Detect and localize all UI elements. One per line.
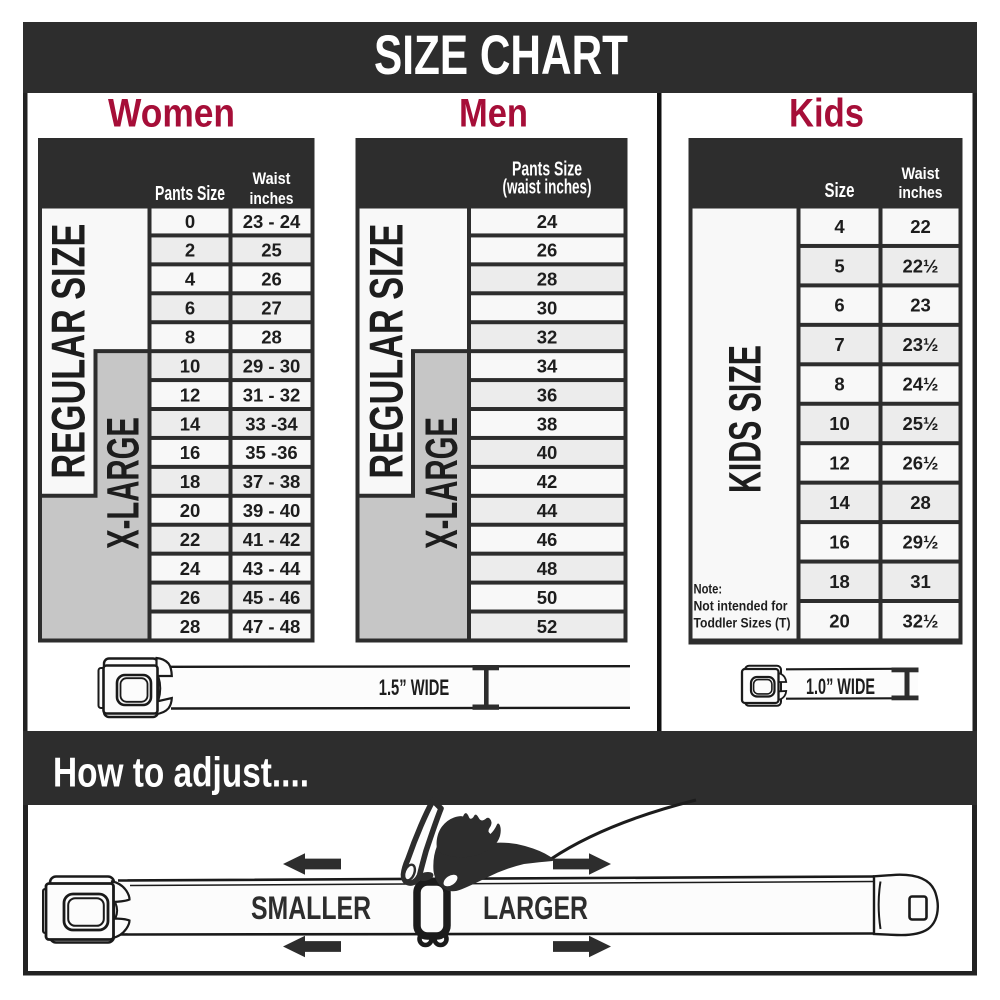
- svg-text:36: 36: [537, 384, 558, 405]
- svg-text:22: 22: [910, 216, 931, 237]
- svg-text:Kids: Kids: [789, 92, 864, 136]
- svg-text:44: 44: [537, 500, 558, 521]
- svg-text:4: 4: [834, 216, 845, 237]
- svg-text:1.0” WIDE: 1.0” WIDE: [806, 674, 875, 699]
- svg-text:4: 4: [185, 269, 196, 290]
- svg-text:18: 18: [180, 471, 201, 492]
- svg-text:34: 34: [537, 355, 558, 376]
- svg-text:Men: Men: [459, 92, 528, 136]
- svg-text:26: 26: [180, 587, 201, 608]
- svg-text:45 - 46: 45 - 46: [243, 587, 301, 608]
- svg-text:24: 24: [537, 211, 558, 232]
- svg-text:8: 8: [834, 374, 844, 395]
- svg-text:35 -36: 35 -36: [245, 442, 297, 463]
- svg-text:SIZE CHART: SIZE CHART: [374, 23, 628, 86]
- svg-text:26: 26: [261, 269, 282, 290]
- svg-text:23: 23: [910, 295, 931, 316]
- svg-text:23½: 23½: [902, 334, 938, 355]
- svg-text:12: 12: [829, 453, 850, 474]
- svg-text:24½: 24½: [902, 374, 938, 395]
- svg-text:6: 6: [834, 295, 844, 316]
- svg-text:43 - 44: 43 - 44: [243, 558, 301, 579]
- svg-text:(waist inches): (waist inches): [503, 177, 592, 199]
- svg-text:28: 28: [180, 616, 201, 637]
- svg-text:31 - 32: 31 - 32: [243, 384, 301, 405]
- svg-text:28: 28: [910, 492, 931, 513]
- svg-text:26½: 26½: [902, 453, 938, 474]
- svg-text:22: 22: [180, 529, 201, 550]
- svg-text:Toddler Sizes (T): Toddler Sizes (T): [694, 614, 791, 630]
- svg-text:41 - 42: 41 - 42: [243, 529, 301, 550]
- svg-text:32½: 32½: [902, 610, 938, 631]
- svg-text:Waist: Waist: [253, 169, 291, 188]
- svg-text:32: 32: [537, 327, 558, 348]
- svg-text:12: 12: [180, 384, 201, 405]
- svg-text:16: 16: [180, 442, 201, 463]
- svg-text:Not intended for: Not intended for: [694, 597, 788, 613]
- svg-text:39 - 40: 39 - 40: [243, 500, 301, 521]
- svg-text:Pants Size: Pants Size: [155, 183, 225, 205]
- svg-text:KIDS SIZE: KIDS SIZE: [720, 345, 771, 493]
- svg-text:24: 24: [180, 558, 201, 579]
- svg-text:52: 52: [537, 616, 558, 637]
- svg-text:10: 10: [829, 413, 850, 434]
- svg-text:18: 18: [829, 571, 850, 592]
- svg-text:2: 2: [185, 240, 195, 261]
- svg-text:25½: 25½: [902, 413, 938, 434]
- svg-text:29½: 29½: [902, 531, 938, 552]
- svg-text:How to adjust....: How to adjust....: [53, 749, 309, 796]
- svg-text:Size: Size: [825, 180, 855, 202]
- svg-text:16: 16: [829, 531, 850, 552]
- svg-text:31: 31: [910, 571, 931, 592]
- svg-text:22½: 22½: [902, 255, 938, 276]
- svg-text:8: 8: [185, 327, 195, 348]
- svg-text:1.5” WIDE: 1.5” WIDE: [379, 675, 450, 700]
- svg-text:7: 7: [834, 334, 844, 355]
- svg-text:37 - 38: 37 - 38: [243, 471, 301, 492]
- svg-text:48: 48: [537, 558, 558, 579]
- svg-text:26: 26: [537, 240, 558, 261]
- svg-text:50: 50: [537, 587, 558, 608]
- svg-text:14: 14: [829, 492, 850, 513]
- svg-text:SMALLER: SMALLER: [251, 890, 371, 926]
- svg-text:46: 46: [537, 529, 558, 550]
- svg-text:REGULAR SIZE: REGULAR SIZE: [359, 224, 412, 479]
- svg-text:Waist: Waist: [902, 164, 940, 183]
- svg-text:inches: inches: [250, 189, 294, 208]
- svg-text:25: 25: [261, 240, 282, 261]
- svg-text:10: 10: [180, 355, 201, 376]
- svg-text:47 - 48: 47 - 48: [243, 616, 301, 637]
- svg-text:30: 30: [537, 298, 558, 319]
- svg-text:LARGER: LARGER: [483, 890, 588, 926]
- svg-text:inches: inches: [899, 183, 943, 202]
- svg-text:5: 5: [834, 255, 844, 276]
- svg-text:20: 20: [829, 610, 850, 631]
- svg-text:X-LARGE: X-LARGE: [98, 417, 149, 549]
- svg-text:0: 0: [185, 211, 195, 232]
- svg-text:29 - 30: 29 - 30: [243, 355, 301, 376]
- svg-text:28: 28: [537, 269, 558, 290]
- svg-text:28: 28: [261, 327, 282, 348]
- svg-text:20: 20: [180, 500, 201, 521]
- svg-text:Note:: Note:: [694, 580, 723, 596]
- svg-text:38: 38: [537, 413, 558, 434]
- svg-text:23 - 24: 23 - 24: [243, 211, 301, 232]
- svg-text:33 -34: 33 -34: [245, 413, 298, 434]
- svg-text:Women: Women: [108, 92, 235, 136]
- svg-text:14: 14: [180, 413, 201, 434]
- svg-text:X-LARGE: X-LARGE: [416, 417, 467, 549]
- svg-text:27: 27: [261, 298, 282, 319]
- svg-text:42: 42: [537, 471, 558, 492]
- svg-text:40: 40: [537, 442, 558, 463]
- svg-text:6: 6: [185, 298, 195, 319]
- svg-text:REGULAR SIZE: REGULAR SIZE: [42, 224, 95, 479]
